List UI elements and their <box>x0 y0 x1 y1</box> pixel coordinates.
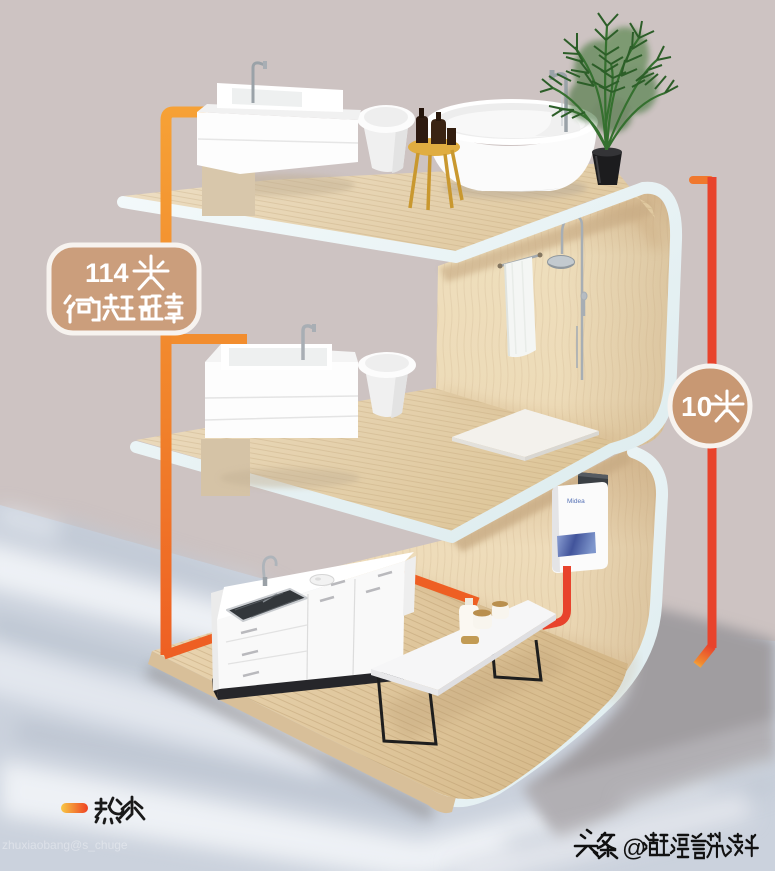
svg-text:114: 114 <box>85 258 129 288</box>
svg-text:@: @ <box>622 835 646 862</box>
svg-text:10: 10 <box>681 391 712 422</box>
svg-text:Midea: Midea <box>567 498 585 505</box>
svg-text:zhuxiaobang@s_chuge: zhuxiaobang@s_chuge <box>2 838 128 852</box>
